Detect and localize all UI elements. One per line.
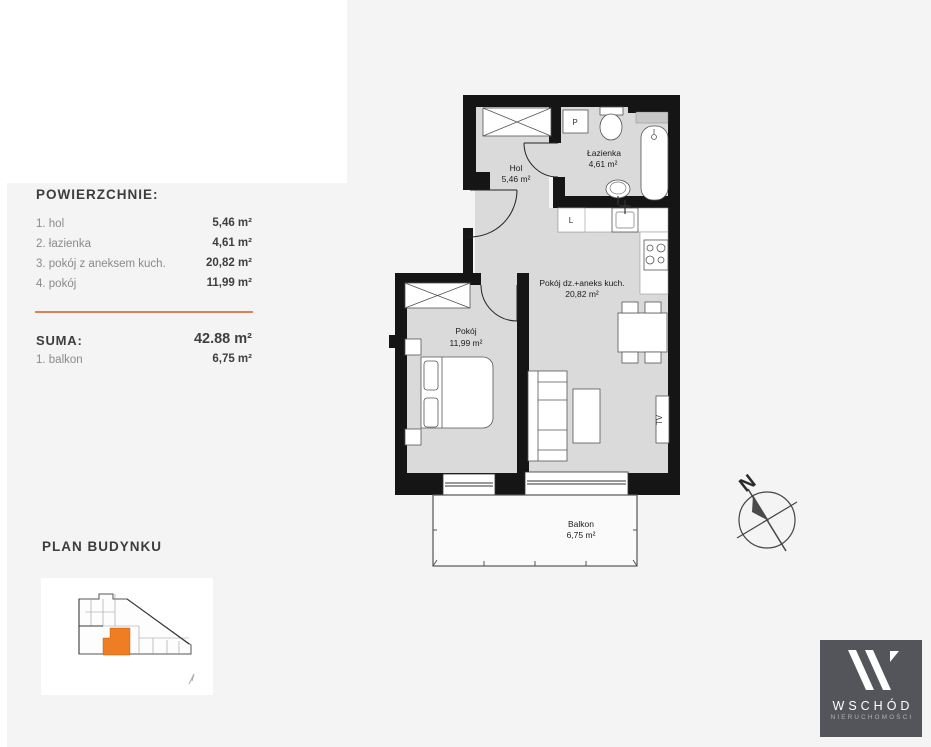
chair: [622, 302, 638, 313]
tv-label: TV: [655, 414, 664, 425]
balcony: [433, 495, 637, 566]
washing-machine-label: P: [572, 118, 577, 127]
wall-right: [668, 95, 680, 495]
hol-label: Hol: [510, 163, 523, 173]
balkon-row: 1. balkon 6,75 m²: [36, 352, 252, 370]
thumbnail-cursor-icon: [189, 674, 194, 684]
chair: [622, 352, 638, 363]
wall-hol-bath-lower: [553, 177, 565, 198]
area-row-hol: 1. hol 5,46 m²: [36, 215, 252, 235]
floor-plan: L P: [380, 85, 690, 580]
flat-offer-page: POWIERZCHNIE: 1. hol 5,46 m² 2. łazienka…: [0, 0, 931, 747]
fridge-label: L: [569, 216, 574, 225]
living-area: 20,82 m²: [565, 289, 599, 299]
pokoj-label: Pokój: [455, 326, 476, 336]
agency-logo: WSCHÓD NIERUCHOMOŚCI: [820, 640, 922, 737]
area-label: 4. pokój: [36, 278, 76, 290]
balkon-label: 1. balkon: [36, 354, 83, 366]
area-value: 4,61 m²: [212, 237, 252, 249]
suma-label: SUMA:: [36, 333, 83, 348]
area-value: 20,82 m²: [206, 257, 252, 269]
area-value: 11,99 m²: [207, 277, 252, 289]
coffee-table: [573, 389, 600, 443]
logo-name: WSCHÓD: [820, 699, 922, 713]
balkon-plan-label: Balkon: [568, 519, 594, 529]
area-value: 5,46 m²: [212, 217, 252, 229]
areas-list: 1. hol 5,46 m² 2. łazienka 4,61 m² 3. po…: [36, 215, 252, 295]
compass-needle: [752, 495, 769, 521]
area-label: 3. pokój z aneksem kuch.: [36, 258, 166, 270]
area-label: 2. łazienka: [36, 238, 91, 250]
hol-area: 5,46 m²: [502, 174, 531, 184]
hol-furniture: [483, 108, 551, 136]
logo-subtitle: NIERUCHOMOŚCI: [820, 714, 922, 721]
left-white-strip: [0, 183, 7, 747]
orange-divider: [35, 311, 253, 313]
chair: [645, 302, 661, 313]
balcony-outline: [433, 495, 637, 566]
ventilation-shaft: [636, 112, 668, 123]
compass-north-letter: N: [735, 470, 760, 496]
balkon-value: 6,75 m²: [212, 353, 252, 365]
building-plan-drawing: [41, 578, 213, 695]
compass: N: [725, 460, 805, 555]
lazienka-area: 4,61 m²: [589, 159, 618, 169]
sofa: [528, 371, 567, 461]
balkon-plan-area: 6,75 m²: [567, 530, 596, 540]
compass-cross-axis: [737, 502, 797, 538]
building-plan-title: PLAN BUDYNKU: [42, 539, 162, 554]
area-row-lazienka: 2. łazienka 4,61 m²: [36, 235, 252, 255]
area-label: 1. hol: [36, 218, 64, 230]
windows: [443, 472, 628, 496]
area-row-pokoj-aneks: 3. pokój z aneksem kuch. 20,82 m²: [36, 255, 252, 275]
areas-panel-title: POWIERZCHNIE:: [36, 187, 159, 202]
nightstand: [405, 339, 421, 355]
pillow: [424, 398, 438, 427]
area-row-pokoj: 4. pokój 11,99 m²: [36, 275, 252, 295]
lazienka-label: Łazienka: [587, 148, 621, 158]
building-plan-thumbnail: [41, 578, 213, 695]
pokoj-area: 11,99 m²: [450, 338, 483, 348]
building-outline: [79, 594, 191, 654]
bath-sink: [606, 180, 630, 198]
wall-left-nub: [389, 335, 395, 348]
bathtub: [641, 126, 668, 200]
wall-left-lower: [463, 237, 473, 273]
bedroom-door-opening: [481, 273, 517, 285]
wall-entry-nub: [463, 228, 473, 237]
wall-entry-pier: [463, 172, 490, 190]
pillow: [424, 361, 438, 390]
wall-bedroom-living: [517, 273, 529, 485]
stove: [644, 240, 668, 270]
suma-value: 42.88 m²: [194, 331, 252, 347]
chair: [645, 352, 661, 363]
wall-top: [463, 95, 680, 107]
toilet: [600, 114, 622, 140]
logo-w-icon: [820, 640, 922, 698]
bath-door-opening: [549, 143, 561, 177]
living-label: Pokój dz.+aneks kuch.: [539, 278, 624, 288]
bedroom-window: [443, 474, 495, 496]
dining-table: [618, 313, 667, 352]
top-left-white-block: [0, 0, 347, 183]
nightstand: [405, 429, 421, 445]
suma-row: SUMA: 42.88 m²: [36, 331, 252, 351]
